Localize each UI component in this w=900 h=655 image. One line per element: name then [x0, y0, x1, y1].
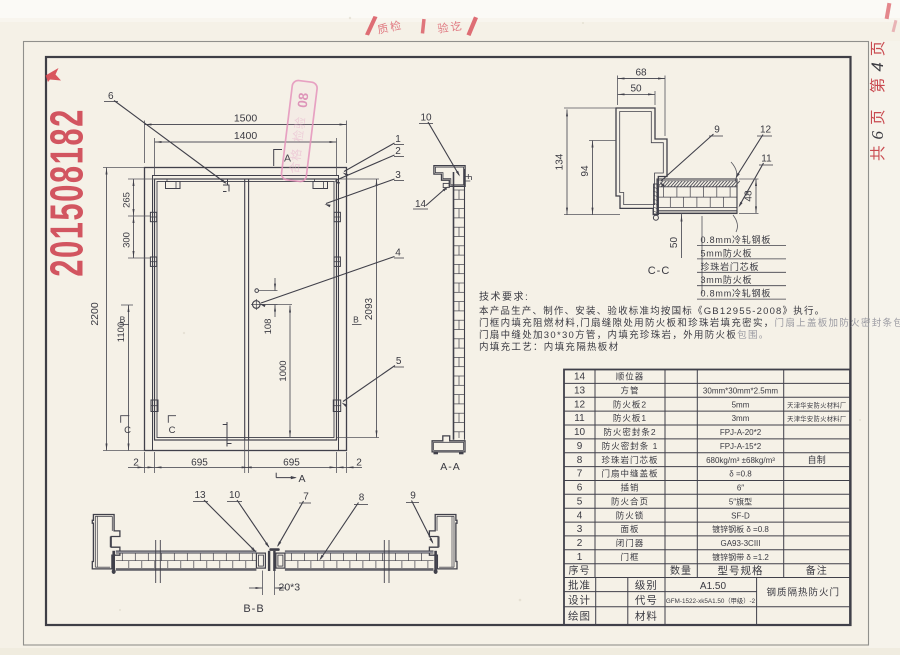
svg-text:0.8mm冷轧钢板: 0.8mm冷轧钢板 [701, 288, 772, 299]
svg-text:批准: 批准 [568, 579, 591, 592]
svg-text:7: 7 [303, 492, 309, 503]
svg-text:134: 134 [555, 153, 566, 170]
svg-text:2: 2 [133, 457, 139, 468]
svg-text:A: A [298, 473, 305, 485]
svg-text:顺位器: 顺位器 [616, 372, 645, 382]
svg-text:10: 10 [229, 490, 241, 501]
svg-text:201508182: 201508182 [41, 108, 93, 277]
svg-text:A-A: A-A [440, 461, 461, 473]
svg-text:防火密封条 1: 防火密封条 1 [602, 441, 659, 451]
svg-text:B: B [353, 315, 359, 325]
svg-text:防火锁: 防火锁 [616, 510, 645, 520]
svg-text:型号规格: 型号规格 [718, 564, 764, 577]
svg-text:3: 3 [395, 170, 401, 181]
svg-text:08: 08 [295, 91, 312, 108]
svg-text:300: 300 [122, 232, 133, 248]
svg-text:12: 12 [574, 399, 586, 410]
svg-text:0.8mm冷轧钢板: 0.8mm冷轧钢板 [701, 234, 772, 245]
svg-text:FPJ-A-15*2: FPJ-A-15*2 [720, 442, 762, 451]
svg-text:4: 4 [395, 248, 401, 259]
svg-text:天津华安防火材料厂: 天津华安防火材料厂 [787, 414, 846, 423]
svg-text:防火合页: 防火合页 [611, 496, 649, 506]
svg-text:钢质隔热防火门: 钢质隔热防火门 [767, 587, 841, 599]
svg-text:9: 9 [410, 491, 416, 502]
svg-text:50: 50 [630, 84, 642, 95]
svg-text:5: 5 [577, 496, 583, 507]
svg-text:C-C: C-C [648, 265, 671, 277]
svg-text:5: 5 [396, 356, 402, 367]
svg-text:C: C [124, 425, 131, 436]
svg-text:9: 9 [577, 441, 583, 452]
svg-text:门扇中缝处加30*30方管，内填充珍珠岩，外用防火板包围。: 门扇中缝处加30*30方管，内填充珍珠岩，外用防火板包围。 [479, 329, 770, 341]
svg-text:GA93-3CIII: GA93-3CIII [720, 539, 760, 548]
svg-text:2: 2 [577, 538, 583, 549]
svg-text:13: 13 [194, 490, 206, 501]
svg-text:设计: 设计 [568, 594, 591, 607]
svg-text:SF-D: SF-D [731, 511, 750, 520]
svg-text:检验: 检验 [290, 115, 308, 143]
svg-text:插销: 插销 [620, 483, 639, 493]
svg-text:3mm: 3mm [732, 414, 750, 423]
svg-text:1: 1 [577, 552, 583, 563]
svg-text:门框内填充阻燃材料,门扇缝隙处用防火板和珍珠岩填充密实，门扇: 门框内填充阻燃材料,门扇缝隙处用防火板和珍珠岩填充密实，门扇上盖板加防火密封条包 [479, 317, 900, 329]
svg-text:48: 48 [744, 190, 755, 202]
svg-text:自制: 自制 [807, 454, 826, 465]
svg-text:695: 695 [191, 457, 208, 468]
svg-text:C: C [169, 425, 176, 436]
svg-text:内填充工艺：内填充隔热板材: 内填充工艺：内填充隔热板材 [479, 341, 619, 353]
svg-text:4: 4 [577, 510, 583, 521]
svg-text:680kg/m³ ±68kg/m³: 680kg/m³ ±68kg/m³ [706, 456, 775, 465]
svg-text:1500: 1500 [234, 113, 258, 125]
svg-text:265: 265 [122, 192, 133, 208]
svg-text:3mm防火板: 3mm防火板 [701, 274, 753, 285]
svg-text:共6页 第4页: 共6页 第4页 [868, 35, 887, 161]
svg-text:方管: 方管 [620, 386, 639, 396]
svg-text:50: 50 [669, 237, 680, 249]
svg-text:10: 10 [574, 427, 586, 438]
svg-text:68: 68 [635, 68, 647, 79]
svg-text:门框: 门框 [620, 552, 639, 562]
svg-text:1: 1 [395, 134, 401, 145]
svg-text:5mm防火板: 5mm防火板 [701, 247, 753, 258]
svg-text:防火密封条2: 防火密封条2 [603, 427, 656, 437]
svg-text:11: 11 [761, 154, 772, 165]
svg-text:绘图: 绘图 [568, 610, 591, 623]
svg-text:数量: 数量 [670, 564, 692, 577]
svg-text:B: B [120, 315, 126, 325]
svg-text:9: 9 [714, 125, 720, 136]
svg-text:级别: 级别 [635, 580, 658, 592]
svg-text:8: 8 [577, 455, 583, 466]
svg-text:镀锌钢板 δ =0.8: 镀锌钢板 δ =0.8 [712, 524, 769, 534]
svg-text:技术要求:: 技术要求: [479, 290, 529, 303]
svg-text:2093: 2093 [364, 297, 375, 320]
svg-text:备注: 备注 [806, 564, 828, 577]
svg-text:A1.50: A1.50 [700, 581, 727, 592]
svg-text:材料: 材料 [635, 610, 658, 623]
svg-text:695: 695 [283, 457, 300, 468]
svg-text:6: 6 [577, 483, 583, 494]
svg-text:防火板1: 防火板1 [613, 413, 647, 423]
svg-text:13: 13 [574, 386, 586, 397]
svg-text:GFM-1522-xk5A1.50（甲级）-2: GFM-1522-xk5A1.50（甲级）-2 [666, 596, 756, 605]
svg-text:B-B: B-B [243, 603, 264, 615]
svg-text:3: 3 [577, 524, 583, 535]
svg-text:δ =0.8: δ =0.8 [729, 470, 752, 479]
svg-text:14: 14 [574, 372, 586, 383]
svg-text:代号: 代号 [635, 595, 658, 607]
svg-text:20*3: 20*3 [279, 582, 301, 594]
svg-text:天津华安防火材料厂: 天津华安防火材料厂 [787, 400, 846, 409]
svg-text:12: 12 [760, 125, 772, 136]
svg-text:珍珠岩门芯板: 珍珠岩门芯板 [701, 261, 760, 272]
svg-text:合格: 合格 [286, 147, 304, 175]
svg-text:5mm: 5mm [732, 400, 750, 409]
svg-text:门扇中缝盖板: 门扇中缝盖板 [601, 469, 658, 479]
svg-text:2200: 2200 [89, 302, 101, 326]
svg-text:面板: 面板 [620, 524, 639, 534]
svg-text:11: 11 [574, 413, 585, 424]
svg-text:序号: 序号 [569, 564, 591, 577]
svg-text:5″旗型: 5″旗型 [729, 496, 752, 506]
svg-text:1400: 1400 [234, 130, 258, 142]
svg-text:7: 7 [577, 469, 583, 480]
svg-text:2: 2 [356, 457, 362, 468]
svg-text:镀锌钢带 δ =1.2: 镀锌钢带 δ =1.2 [712, 552, 769, 562]
svg-text:闭门器: 闭门器 [616, 538, 645, 548]
svg-text:30mm*30mm*2.5mm: 30mm*30mm*2.5mm [703, 387, 778, 396]
svg-text:6″: 6″ [737, 484, 744, 493]
svg-text:防火板2: 防火板2 [613, 399, 647, 409]
svg-text:94: 94 [580, 165, 591, 177]
svg-text:108: 108 [263, 319, 274, 335]
svg-text:10: 10 [420, 113, 432, 124]
svg-text:14: 14 [415, 199, 427, 210]
svg-text:1000: 1000 [278, 360, 289, 381]
svg-text:6: 6 [108, 91, 114, 102]
svg-text:珍珠岩门芯板: 珍珠岩门芯板 [601, 455, 658, 465]
svg-text:本产品生产、制作、安装、验收标准均按国标《GB12955-2: 本产品生产、制作、安装、验收标准均按国标《GB12955-2008》执行。 [479, 305, 825, 317]
svg-text:2: 2 [395, 146, 401, 157]
svg-text:FPJ-A-20*2: FPJ-A-20*2 [720, 428, 762, 437]
svg-text:8: 8 [359, 493, 365, 504]
